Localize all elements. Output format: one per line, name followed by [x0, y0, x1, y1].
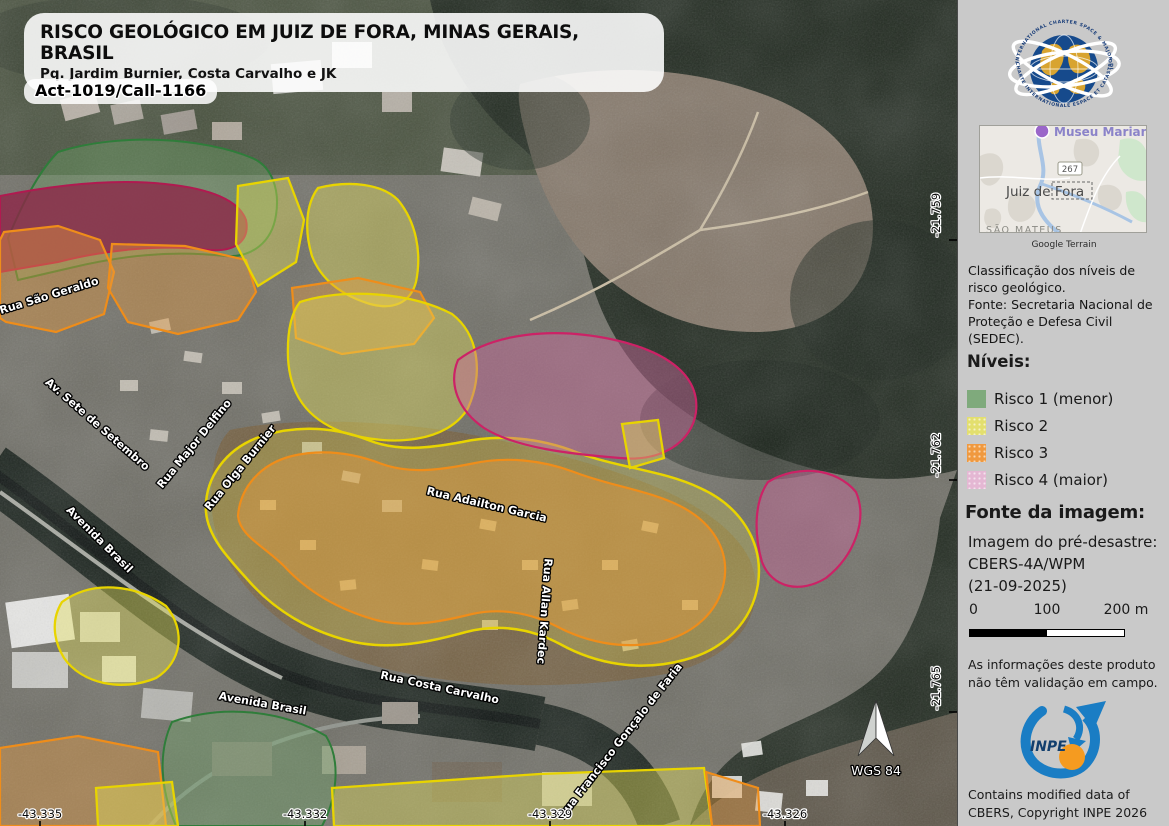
map-pin-icon — [1035, 126, 1049, 138]
inset-locator-map[interactable]: Museu Mariano P 267 Juiz de Fora SÃO MAT… — [979, 125, 1147, 233]
charter-logo-icon: INTERNATIONAL CHARTER SPACE & MAJOR DISA… — [1006, 6, 1122, 124]
legend-item-risk3: Risco 3 — [967, 439, 1165, 466]
risk-zone-3-polygon — [108, 244, 256, 334]
satellite-map: Rua São Geraldo Av. Sete de Setembro Rua… — [0, 0, 957, 826]
risk-legend: Risco 1 (menor) Risco 2 Risco 3 Risco 4 … — [967, 385, 1165, 493]
scale-bar-labels: 0 100 200 m — [958, 602, 1169, 620]
risk-zone-2-polygon — [288, 294, 477, 441]
page-title: RISCO GEOLÓGICO EM JUIZ DE FORA, MINAS G… — [40, 22, 644, 64]
legend-label: Risco 1 (menor) — [994, 390, 1113, 408]
risk2-swatch — [967, 417, 986, 435]
inpe-logo-label: INPE — [1030, 739, 1067, 755]
legend-item-risk1: Risco 1 (menor) — [967, 385, 1165, 412]
longitude-label: -43.335 — [18, 807, 62, 821]
longitude-label: -43.332 — [283, 807, 327, 821]
image-source-text: Imagem do pré-desastre: CBERS-4A/WPM (21… — [968, 531, 1166, 597]
legend-label: Risco 2 — [994, 417, 1048, 435]
scale-bar-white-segment — [1047, 630, 1124, 636]
risk3-swatch — [967, 444, 986, 462]
legend-item-risk4: Risco 4 (maior) — [967, 466, 1165, 493]
levels-heading: Níveis: — [967, 352, 1031, 371]
risk-zone-2-polygon — [96, 782, 178, 826]
validation-disclaimer: As informações deste produto não têm val… — [968, 656, 1166, 692]
latitude-label: -21.759 — [929, 193, 943, 237]
risk4-swatch — [967, 471, 986, 489]
legend-label: Risco 3 — [994, 444, 1048, 462]
inset-poi-label: Museu Mariano P — [1054, 126, 1147, 139]
longitude-label: -43.329 — [528, 807, 572, 821]
legend-label: Risco 4 (maior) — [994, 471, 1108, 489]
risk1-swatch — [967, 390, 986, 408]
image-source-heading: Fonte da imagem: — [965, 502, 1145, 523]
datum-label: WGS 84 — [851, 763, 901, 778]
inpe-logo-icon: INPE — [1014, 697, 1114, 785]
route-badge: 267 — [1062, 165, 1078, 175]
latitude-label: -21.762 — [929, 433, 943, 477]
risk-zone-2-polygon — [622, 420, 664, 468]
scale-bar-black-segment — [970, 630, 1047, 636]
scale-label-0: 0 — [969, 602, 978, 618]
map-canvas[interactable]: Rua São Geraldo Av. Sete de Setembro Rua… — [0, 0, 957, 826]
legend-item-risk2: Risco 2 — [967, 412, 1165, 439]
scale-bar — [969, 629, 1125, 637]
latitude-label: -21.765 — [929, 666, 943, 710]
longitude-label: -43.326 — [763, 807, 807, 821]
activation-code-badge: Act-1019/Call-1166 — [24, 79, 217, 104]
inset-map-caption: Google Terrain — [958, 240, 1169, 250]
scale-label-100: 100 — [1016, 602, 1078, 618]
inset-district-label: SÃO MATEUS — [986, 225, 1063, 233]
copyright-note: Contains modified data of CBERS, Copyrig… — [968, 786, 1168, 822]
classification-note: Classificação dos níveis de risco geológ… — [968, 262, 1164, 347]
scale-label-200: 200 m — [1089, 602, 1163, 618]
map-product-page: Rua São Geraldo Av. Sete de Setembro Rua… — [0, 0, 1169, 826]
sidebar: INTERNATIONAL CHARTER SPACE & MAJOR DISA… — [957, 0, 1169, 826]
inset-city-label: Juiz de Fora — [1005, 184, 1084, 200]
